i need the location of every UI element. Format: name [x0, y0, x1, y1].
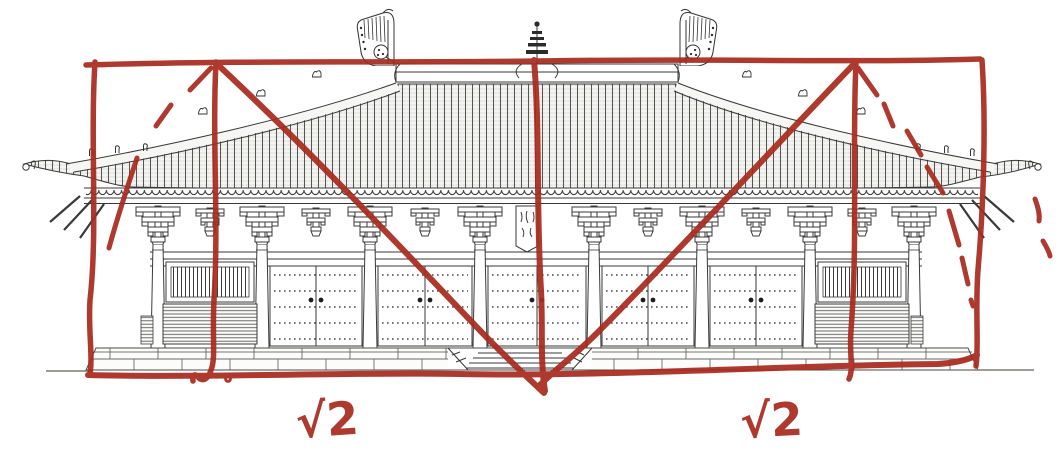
outer-frame-right	[976, 60, 984, 366]
outer-frame-left	[90, 62, 95, 374]
name-plaque	[516, 206, 538, 252]
door-bay	[488, 266, 586, 346]
roof-tiles	[24, 84, 1040, 190]
figure-canvas: √2 √2	[0, 0, 1064, 453]
window-bay-right	[815, 262, 923, 344]
sqrt2-labels: √2 √2	[294, 391, 804, 449]
sill-wall-left	[163, 304, 257, 344]
stray-dash-right	[1035, 199, 1050, 256]
door-bay	[710, 266, 802, 346]
stray-dot	[226, 377, 231, 382]
proportion-analysis-figure: √2 √2	[0, 0, 1064, 453]
door-bays	[270, 266, 802, 346]
chiwei-left-ornament	[357, 9, 394, 66]
sqrt2-label-left: √2	[294, 391, 360, 449]
sill-wall-right	[815, 304, 909, 344]
sqrt2-label-right: √2	[739, 392, 804, 449]
door-bay	[270, 266, 362, 346]
eave-scallops	[86, 188, 978, 197]
